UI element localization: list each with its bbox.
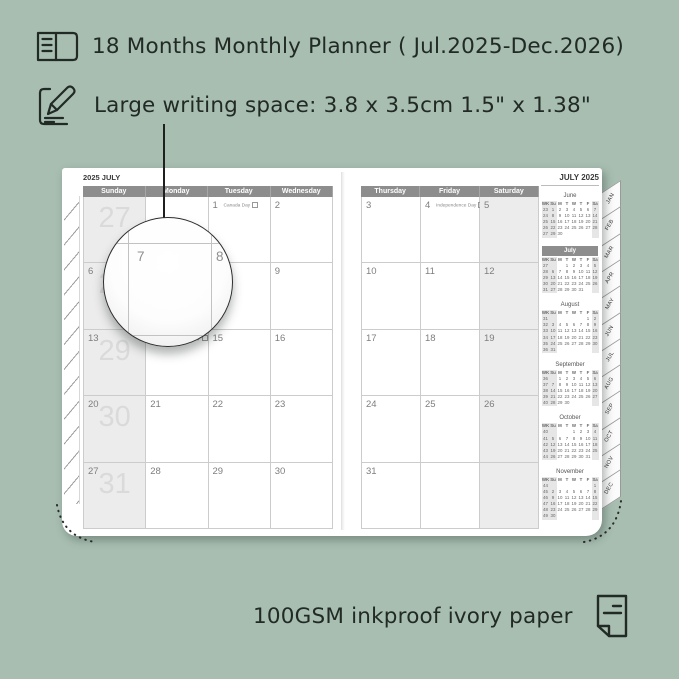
day-cell: 9 xyxy=(271,263,333,329)
paper-sheet-icon xyxy=(590,593,631,640)
mini-grid: WKSuMTWTFSa23123456724891011121314251516… xyxy=(541,201,599,238)
mini-calendar-august: AugustWKSuMTWTFSa31123234567893310111213… xyxy=(541,301,599,353)
right-page: JULY 2025 ThursdayFridaySaturday34Indepe… xyxy=(344,168,602,536)
date-number: 19 xyxy=(484,333,495,344)
holiday-flag-icon xyxy=(252,202,258,208)
feature-text-writing-space: Large writing space: 3.8 x 3.5cm 1.5" x … xyxy=(94,93,591,118)
day-cell: 12 xyxy=(480,263,539,329)
mini-day xyxy=(571,347,578,353)
date-number: 5 xyxy=(484,200,489,211)
date-number: 9 xyxy=(275,266,280,277)
right-calendar: ThursdayFridaySaturday34Independence Day… xyxy=(361,186,539,529)
day-cell: 30 xyxy=(271,463,333,529)
day-cell: 3 xyxy=(362,197,421,263)
feature-annotation-planner-range: 18 Months Monthly Planner ( Jul.2025-Dec… xyxy=(36,30,624,63)
mini-day: 31 xyxy=(578,287,585,293)
holiday-label: Independence Day xyxy=(436,202,484,208)
mini-day xyxy=(592,347,599,353)
mini-day: 36 xyxy=(542,347,550,353)
mini-day xyxy=(557,347,564,353)
mini-calendar-june: JuneWKSuMTWTFSa2312345672489101112131425… xyxy=(541,192,599,238)
mini-day: 26 xyxy=(550,454,557,460)
month-tab-label: FEB xyxy=(605,219,616,232)
date-number: 11 xyxy=(425,266,435,277)
date-number: 25 xyxy=(425,399,436,410)
pencil-note-icon xyxy=(36,83,81,128)
day-cell: 16 xyxy=(271,330,333,396)
day-cell: 5 xyxy=(480,197,539,263)
month-tab-label: JUN xyxy=(605,324,616,337)
day-cell: 3127 xyxy=(84,463,146,529)
day-cell: 31 xyxy=(362,463,421,529)
date-number: 16 xyxy=(275,333,286,344)
mini-day: 27 xyxy=(550,287,557,293)
day-cell: 3020 xyxy=(84,396,146,462)
mini-day xyxy=(571,513,578,519)
mini-calendar-sidebar: JuneWKSuMTWTFSa2312345672489101112131425… xyxy=(541,186,599,520)
feature-text-planner-range: 18 Months Monthly Planner ( Jul.2025-Dec… xyxy=(92,34,624,59)
feature-annotation-paper: 100GSM inkproof ivory paper xyxy=(253,593,631,640)
product-image: 18 Months Monthly Planner ( Jul.2025-Dec… xyxy=(0,0,679,679)
weekday-header: Saturday xyxy=(480,186,539,197)
day-cell: 19 xyxy=(480,330,539,396)
weekday-header: Tuesday xyxy=(208,186,271,197)
date-number: 26 xyxy=(484,399,495,410)
mini-day: 31 xyxy=(542,287,550,293)
mini-day xyxy=(564,347,571,353)
mini-calendar-october: OctoberWKSuMTWTFSa4012344156789101142121… xyxy=(541,414,599,460)
day-cell: 25 xyxy=(421,396,480,462)
date-number: 2 xyxy=(275,200,280,211)
date-number: 6 xyxy=(88,266,93,277)
mini-day xyxy=(585,513,592,519)
date-number: 18 xyxy=(425,333,436,344)
month-tab-label: NOV xyxy=(604,455,616,469)
day-cell xyxy=(421,463,480,529)
magnified-grid-line xyxy=(104,243,232,244)
weekday-header: Sunday xyxy=(83,186,146,197)
date-number: 10 xyxy=(366,266,377,277)
day-cell: 10 xyxy=(362,263,421,329)
mini-day: 27 xyxy=(557,454,564,460)
feature-text-paper: 100GSM inkproof ivory paper xyxy=(253,604,573,629)
calendar-grid: 34Independence Day510111217181924252631 xyxy=(361,197,539,529)
magnified-grid-line xyxy=(104,335,232,336)
left-page-title: 2025 JULY xyxy=(83,173,120,182)
mini-month-name: October xyxy=(541,414,599,422)
day-cell: 29 xyxy=(209,463,271,529)
mini-grid: WKSuMTWTFSa40123441567891011421213141516… xyxy=(541,423,599,460)
right-page-title: JULY 2025 xyxy=(541,173,599,186)
mini-day xyxy=(578,347,585,353)
mini-day: 28 xyxy=(557,287,564,293)
mini-day: 30 xyxy=(564,400,571,406)
weekday-header: Wednesday xyxy=(271,186,334,197)
mini-day: 31 xyxy=(585,454,592,460)
day-cell: 18 xyxy=(421,330,480,396)
day-cell: 24 xyxy=(362,396,421,462)
mini-grid: WKSuMTWTFSa31123234567893310111213141516… xyxy=(541,310,599,353)
mini-calendar-september: SeptemberWKSuMTWTFSa36123456377891011121… xyxy=(541,361,599,407)
magnified-date-8: 8 xyxy=(216,249,224,264)
mini-grid: WKSuMTWTFSa27123452867891011122913141516… xyxy=(541,257,599,294)
mini-day xyxy=(571,231,578,237)
month-tab-label: MAR xyxy=(604,245,616,259)
mini-month-name: June xyxy=(541,192,599,200)
month-tab-label: JAN xyxy=(605,192,616,205)
month-tab-label: AUG xyxy=(604,376,616,390)
date-number: 12 xyxy=(484,266,495,277)
mini-day: 29 xyxy=(550,231,557,237)
date-number: 4 xyxy=(425,200,430,211)
month-tab-label: DEC xyxy=(604,482,615,496)
day-cell: 23 xyxy=(271,396,333,462)
holiday-label: Canada Day xyxy=(224,202,259,208)
month-tab-label: JUL xyxy=(605,350,616,362)
mini-day: 28 xyxy=(564,454,571,460)
mini-day: 27 xyxy=(542,231,550,237)
mini-day: 49 xyxy=(542,513,550,519)
mini-day: 29 xyxy=(571,454,578,460)
date-number: 28 xyxy=(150,466,161,477)
mini-day xyxy=(564,513,571,519)
month-tab-label: APR xyxy=(604,271,615,285)
mini-day xyxy=(585,231,592,237)
feature-annotation-writing-space: Large writing space: 3.8 x 3.5cm 1.5" x … xyxy=(36,83,591,128)
mini-day xyxy=(571,400,578,406)
date-number: 21 xyxy=(150,399,161,410)
mini-day xyxy=(592,231,599,237)
date-number: 1 xyxy=(213,200,218,211)
mini-calendar-july: JulyWKSuMTWTFSa2712345286789101112291314… xyxy=(541,246,599,294)
month-tab-label: OCT xyxy=(604,429,615,443)
mini-day: 28 xyxy=(550,400,557,406)
weekday-header-row: SundayMondayTuesdayWednesday xyxy=(83,186,333,197)
callout-pointer-line xyxy=(163,124,165,218)
mini-day xyxy=(557,513,564,519)
weekday-header: Friday xyxy=(420,186,479,197)
date-number: 20 xyxy=(88,399,99,410)
mini-day xyxy=(578,513,585,519)
mini-grid: WKSuMTWTFSa36123456377891011121338141516… xyxy=(541,370,599,407)
date-number: 23 xyxy=(275,399,286,410)
magnifier-circle: 7 8 xyxy=(103,217,233,347)
mini-month-name: November xyxy=(541,468,599,476)
mini-day xyxy=(578,400,585,406)
day-cell: 4Independence Day xyxy=(421,197,480,263)
day-cell: 22 xyxy=(209,396,271,462)
mini-day xyxy=(592,513,599,519)
mini-month-name: August xyxy=(541,301,599,309)
day-cell: 2 xyxy=(271,197,333,263)
date-number: 31 xyxy=(366,466,377,477)
mini-day xyxy=(585,400,592,406)
date-number: 22 xyxy=(213,399,224,410)
mini-day xyxy=(592,287,599,293)
day-cell xyxy=(480,463,539,529)
planner-book-icon xyxy=(36,30,79,63)
day-cell: 28 xyxy=(146,463,208,529)
date-number: 3 xyxy=(366,200,371,211)
mini-day xyxy=(585,347,592,353)
magnified-grid-line xyxy=(128,218,129,346)
date-number: 13 xyxy=(88,333,99,344)
mini-day: 29 xyxy=(557,400,564,406)
weekday-header-row: ThursdayFridaySaturday xyxy=(361,186,539,197)
mini-day xyxy=(592,454,599,460)
day-cell: 15 xyxy=(209,330,271,396)
day-cell: 17 xyxy=(362,330,421,396)
day-cell: 2913 xyxy=(84,330,146,396)
mini-day: 29 xyxy=(564,287,571,293)
page-edges-hatch xyxy=(64,196,80,504)
mini-day xyxy=(564,231,571,237)
mini-day: 31 xyxy=(550,347,557,353)
mini-calendar-november: NovemberWKSuMTWTFSa441452345678469101112… xyxy=(541,468,599,520)
date-number: 17 xyxy=(366,333,377,344)
mini-day: 30 xyxy=(557,231,564,237)
weekday-header: Monday xyxy=(146,186,209,197)
date-number: 29 xyxy=(213,466,224,477)
mini-day xyxy=(578,231,585,237)
day-cell: 26 xyxy=(480,396,539,462)
mini-day: 30 xyxy=(571,287,578,293)
date-number: 27 xyxy=(88,466,99,477)
mini-month-name: September xyxy=(541,361,599,369)
magnified-date-7: 7 xyxy=(137,249,145,264)
mini-day: 40 xyxy=(542,400,550,406)
day-cell: 21 xyxy=(146,396,208,462)
magnified-grid-line xyxy=(211,218,212,346)
mini-day: 30 xyxy=(550,513,557,519)
mini-day: 30 xyxy=(578,454,585,460)
date-number: 30 xyxy=(275,466,286,477)
month-tab-label: MAY xyxy=(604,297,615,311)
magnified-cells: 7 8 xyxy=(104,218,232,346)
mini-grid: WKSuMTWTFSa44145234567846910111213141547… xyxy=(541,477,599,520)
mini-day xyxy=(592,400,599,406)
date-number: 24 xyxy=(366,399,377,410)
month-tab-label: SEP xyxy=(604,403,615,416)
weekday-header: Thursday xyxy=(361,186,420,197)
day-cell: 11 xyxy=(421,263,480,329)
mini-day xyxy=(585,287,592,293)
mini-day: 44 xyxy=(542,454,550,460)
mini-month-name: July xyxy=(542,246,598,256)
